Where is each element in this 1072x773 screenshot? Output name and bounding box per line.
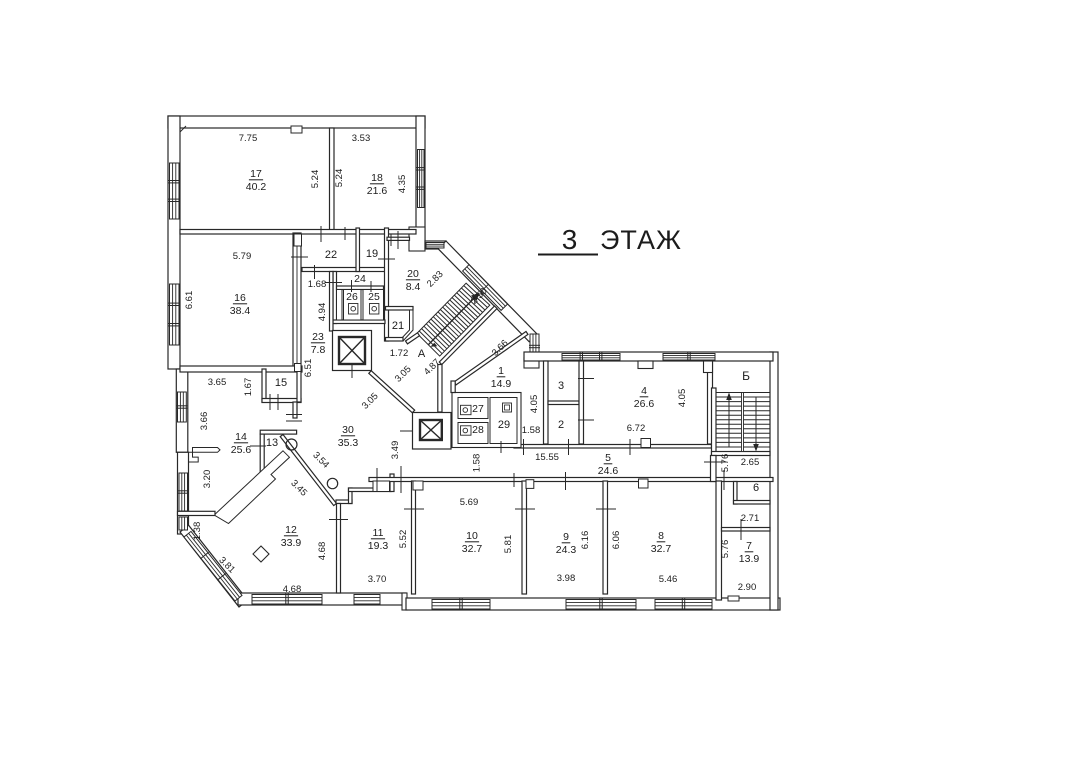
svg-text:6.72: 6.72	[627, 423, 646, 434]
svg-text:6.51: 6.51	[303, 359, 314, 378]
svg-text:14: 14	[235, 431, 247, 443]
svg-text:6.16: 6.16	[580, 531, 591, 550]
svg-text:5: 5	[605, 452, 611, 464]
svg-text:2.65: 2.65	[741, 457, 760, 468]
svg-text:16: 16	[234, 292, 246, 304]
svg-text:5.46: 5.46	[659, 574, 678, 585]
svg-text:26.6: 26.6	[634, 398, 655, 410]
svg-text:6: 6	[753, 482, 759, 494]
svg-text:3.53: 3.53	[352, 133, 371, 144]
svg-text:19.3: 19.3	[368, 540, 389, 552]
svg-text:6.06: 6.06	[611, 531, 622, 550]
svg-text:3: 3	[558, 380, 564, 392]
svg-text:8.4: 8.4	[406, 281, 421, 293]
svg-text:1: 1	[498, 365, 504, 377]
svg-text:1.38: 1.38	[192, 522, 203, 541]
svg-text:3.65: 3.65	[208, 377, 227, 388]
svg-text:5.69: 5.69	[460, 497, 479, 508]
svg-text:1.58: 1.58	[522, 425, 541, 436]
svg-text:24.6: 24.6	[598, 465, 619, 477]
svg-text:А: А	[418, 348, 426, 360]
svg-text:19: 19	[366, 248, 378, 260]
svg-text:23: 23	[312, 331, 324, 343]
svg-text:7.8: 7.8	[311, 344, 326, 356]
svg-text:30: 30	[342, 424, 354, 436]
svg-text:32.7: 32.7	[462, 543, 483, 555]
svg-text:8: 8	[658, 530, 664, 542]
svg-text:5.24: 5.24	[334, 169, 345, 188]
svg-text:38.4: 38.4	[230, 305, 251, 317]
svg-text:3.98: 3.98	[557, 573, 576, 584]
svg-text:10: 10	[466, 530, 478, 542]
svg-text:6.61: 6.61	[184, 291, 195, 310]
svg-text:21.6: 21.6	[367, 185, 388, 197]
svg-text:5.52: 5.52	[398, 530, 409, 549]
svg-text:5.76: 5.76	[720, 454, 731, 473]
svg-text:Б: Б	[742, 369, 750, 383]
svg-text:3: 3	[562, 224, 578, 255]
svg-text:3.20: 3.20	[202, 470, 213, 489]
svg-text:7.75: 7.75	[239, 133, 258, 144]
svg-text:4.05: 4.05	[529, 395, 540, 414]
svg-text:3.70: 3.70	[368, 574, 387, 585]
svg-text:5.76: 5.76	[720, 540, 731, 559]
svg-text:22: 22	[325, 249, 337, 261]
svg-text:3.66: 3.66	[199, 412, 210, 431]
svg-text:18: 18	[371, 172, 383, 184]
svg-text:40.2: 40.2	[246, 181, 267, 193]
svg-text:1.58: 1.58	[472, 454, 483, 473]
svg-text:25: 25	[368, 291, 380, 303]
svg-text:3.49: 3.49	[390, 441, 401, 460]
svg-text:2.90: 2.90	[738, 582, 757, 593]
svg-text:28: 28	[472, 424, 484, 436]
svg-text:33.9: 33.9	[281, 537, 302, 549]
svg-text:29: 29	[498, 419, 510, 431]
svg-text:4.94: 4.94	[317, 303, 328, 322]
svg-text:13: 13	[266, 437, 278, 449]
svg-text:14.9: 14.9	[491, 378, 512, 390]
svg-text:2: 2	[558, 419, 564, 431]
svg-text:17: 17	[250, 168, 262, 180]
svg-text:26: 26	[346, 291, 358, 303]
svg-text:4.68: 4.68	[283, 584, 302, 595]
svg-text:4.68: 4.68	[317, 542, 328, 561]
svg-text:24.3: 24.3	[556, 544, 577, 556]
svg-text:24: 24	[354, 273, 366, 285]
svg-text:ЭТАЖ: ЭТАЖ	[600, 225, 682, 255]
svg-text:2.71: 2.71	[741, 513, 760, 524]
svg-text:25.6: 25.6	[231, 444, 252, 456]
svg-text:1.72: 1.72	[390, 348, 409, 359]
svg-text:35.3: 35.3	[338, 437, 359, 449]
svg-text:5.81: 5.81	[503, 535, 514, 554]
svg-text:15: 15	[275, 377, 287, 389]
svg-text:5.79: 5.79	[233, 251, 252, 262]
svg-text:5.24: 5.24	[310, 170, 321, 189]
svg-text:9: 9	[563, 531, 569, 543]
svg-text:20: 20	[407, 268, 419, 280]
svg-text:12: 12	[285, 524, 297, 536]
svg-text:1.68: 1.68	[308, 279, 327, 290]
svg-text:13.9: 13.9	[739, 553, 760, 565]
svg-text:4.05: 4.05	[677, 389, 688, 408]
svg-text:7: 7	[746, 540, 752, 552]
svg-text:27: 27	[472, 403, 484, 415]
svg-text:11: 11	[373, 527, 384, 539]
svg-text:1.67: 1.67	[243, 378, 254, 397]
svg-text:21: 21	[392, 320, 404, 332]
svg-text:32.7: 32.7	[651, 543, 672, 555]
svg-text:4.35: 4.35	[397, 175, 408, 194]
svg-text:15.55: 15.55	[535, 452, 559, 463]
svg-text:4: 4	[641, 385, 647, 397]
